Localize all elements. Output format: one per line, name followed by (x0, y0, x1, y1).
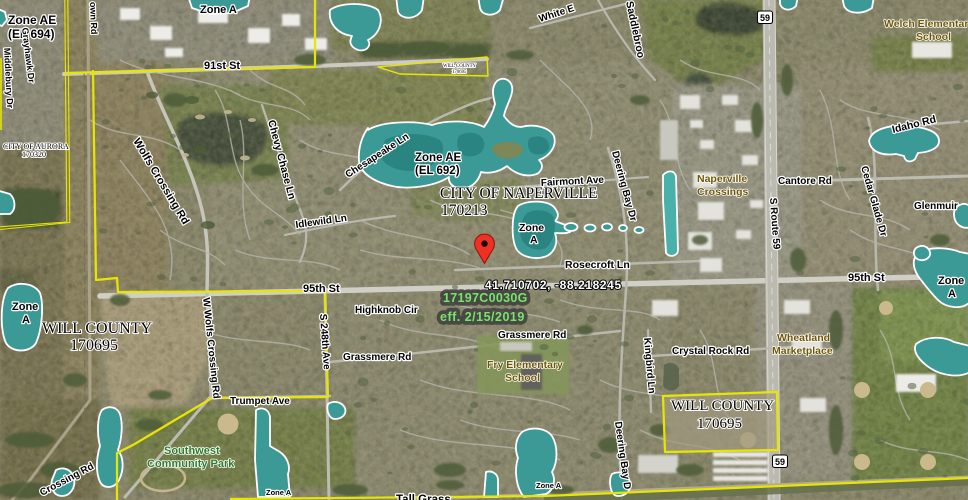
svg-text:(EL 692): (EL 692) (415, 165, 460, 177)
svg-text:Zone A: Zone A (536, 481, 562, 490)
svg-text:School: School (505, 372, 540, 384)
svg-text:Grassmere Rd: Grassmere Rd (343, 352, 411, 363)
svg-text:Zone: Zone (12, 301, 38, 313)
svg-text:95th St: 95th St (848, 272, 885, 284)
svg-text:WILL COUNTY: WILL COUNTY (443, 64, 477, 69)
svg-text:Grassmere Rd: Grassmere Rd (498, 330, 566, 341)
svg-text:170320: 170320 (22, 150, 46, 159)
svg-text:own Rd: own Rd (88, 2, 99, 35)
svg-text:Welch Elementar: Welch Elementar (884, 18, 968, 30)
svg-text:170695: 170695 (452, 70, 467, 75)
svg-text:Southwest: Southwest (164, 445, 220, 457)
svg-text:Community Park: Community Park (147, 458, 235, 470)
svg-text:Zone: Zone (519, 222, 544, 234)
svg-text:Rosecroft Ln: Rosecroft Ln (565, 259, 630, 271)
svg-text:170695: 170695 (697, 416, 742, 432)
svg-text:95th St: 95th St (303, 283, 340, 295)
svg-text:Zone AE: Zone AE (8, 13, 56, 27)
svg-text:170213: 170213 (441, 202, 488, 219)
svg-text:eff. 2/15/2019: eff. 2/15/2019 (440, 310, 525, 324)
svg-text:Zone A: Zone A (200, 4, 237, 16)
svg-text:A: A (530, 234, 538, 246)
svg-text:170695: 170695 (70, 337, 118, 354)
svg-text:Glenmuir: Glenmuir (914, 201, 958, 212)
svg-text:Fry Elementary: Fry Elementary (487, 359, 563, 371)
svg-text:Naperville: Naperville (697, 173, 747, 185)
svg-text:Zone: Zone (938, 275, 964, 287)
svg-text:School: School (916, 31, 951, 43)
svg-text:Highknob Cir: Highknob Cir (355, 305, 418, 316)
svg-text:CITY OF NAPERVILLE: CITY OF NAPERVILLE (440, 185, 597, 202)
svg-text:59: 59 (760, 13, 770, 23)
svg-text:WILL COUNTY: WILL COUNTY (42, 320, 152, 337)
svg-text:17197C0030G: 17197C0030G (443, 291, 528, 305)
svg-text:Tall Grass: Tall Grass (396, 494, 451, 500)
svg-text:59: 59 (775, 457, 785, 467)
svg-text:A: A (948, 288, 956, 300)
svg-text:Trumpet Ave: Trumpet Ave (230, 396, 290, 407)
svg-text:Marketplace: Marketplace (772, 345, 833, 357)
svg-text:Crystal Rock Rd: Crystal Rock Rd (672, 346, 749, 357)
svg-text:Cantore Rd: Cantore Rd (778, 176, 832, 187)
svg-text:41.710702, -88.218245: 41.710702, -88.218245 (485, 278, 622, 292)
svg-text:Zone A: Zone A (266, 488, 292, 497)
svg-text:Zone AE: Zone AE (415, 152, 462, 164)
svg-text:91st St: 91st St (204, 60, 240, 72)
svg-text:Crossings: Crossings (697, 186, 749, 198)
svg-text:WILL COUNTY: WILL COUNTY (671, 398, 774, 414)
svg-text:A: A (22, 314, 30, 326)
svg-text:Wheatland: Wheatland (777, 332, 830, 344)
